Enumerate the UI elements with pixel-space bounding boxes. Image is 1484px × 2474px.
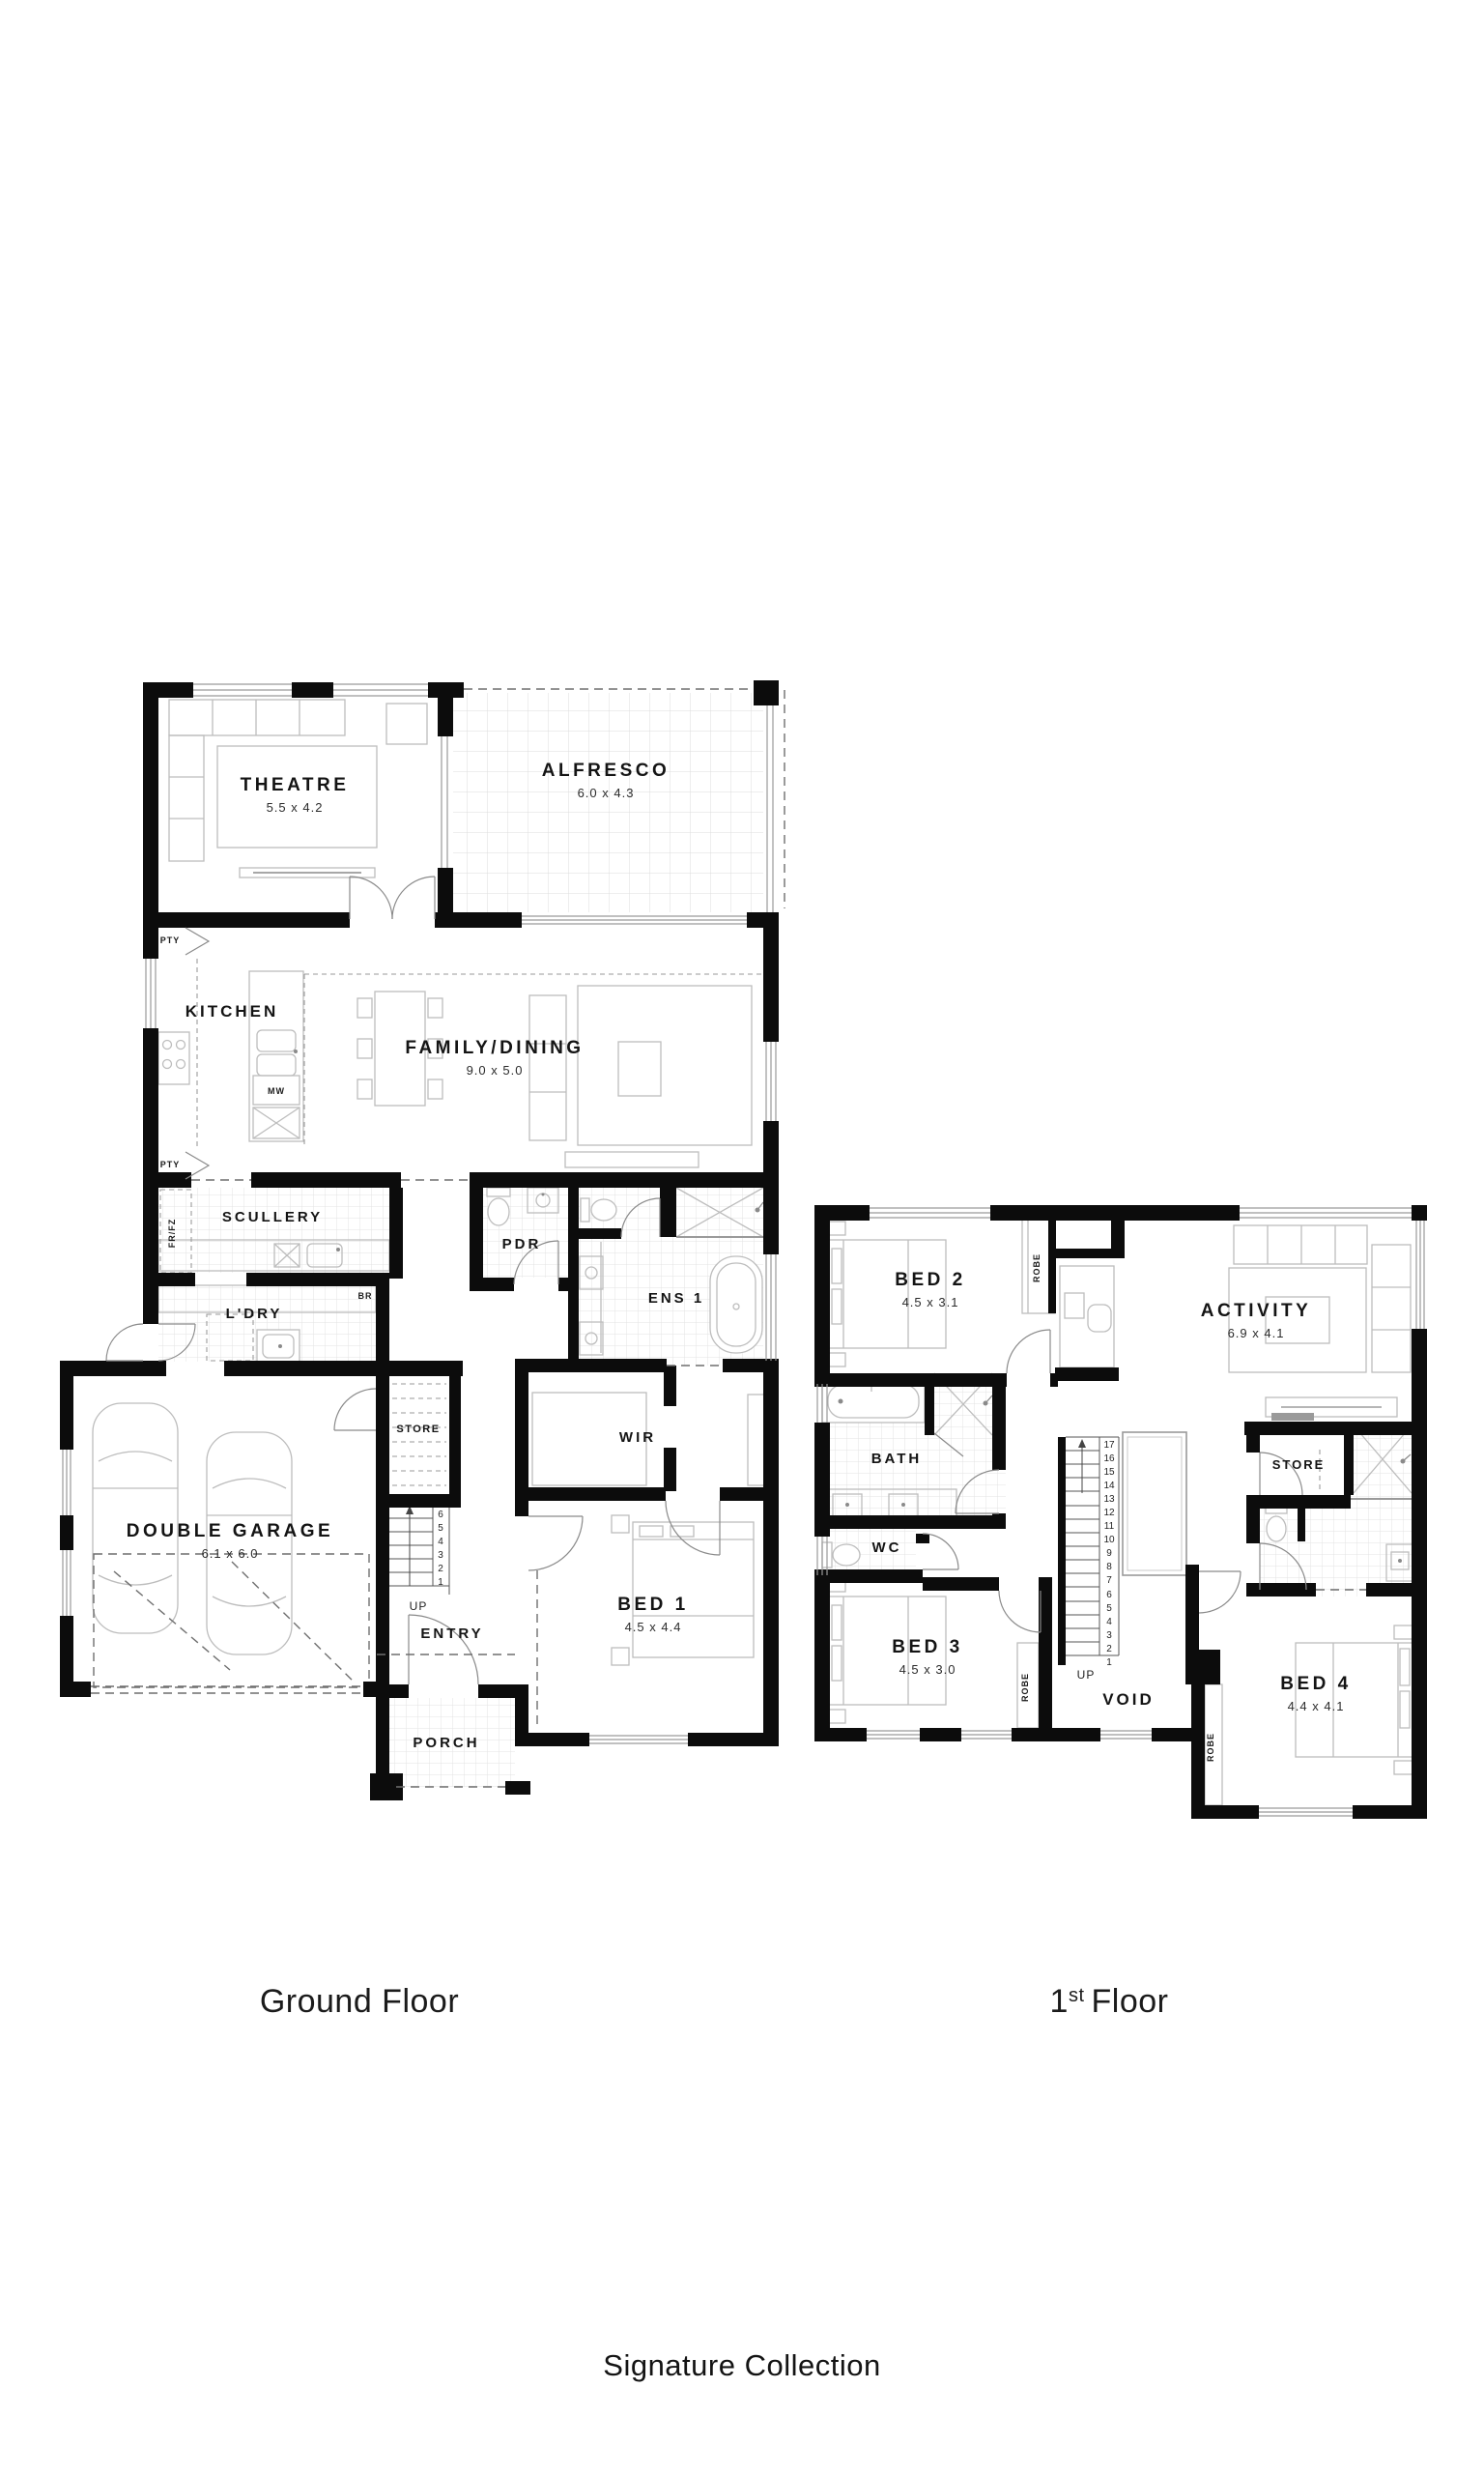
first-stairs: 17 16 15 14 13 12 11 10 9 8 7 6 5 4 3 2 … bbox=[1058, 1432, 1186, 1682]
activity-dims: 6.9 x 4.1 bbox=[1228, 1326, 1285, 1340]
door-arc bbox=[528, 1516, 583, 1570]
window-icon bbox=[766, 1042, 776, 1121]
bed1-dims: 4.5 x 4.4 bbox=[625, 1620, 682, 1634]
door-arc bbox=[999, 1591, 1041, 1632]
floorplan-canvas: 6 5 4 3 2 1 UP bbox=[0, 0, 1484, 2474]
pantry-door-icon bbox=[185, 928, 209, 955]
collection-footer: Signature Collection bbox=[603, 2348, 880, 2382]
window-icon bbox=[1259, 1808, 1353, 1816]
wir-label: WIR bbox=[619, 1429, 656, 1446]
window-icon bbox=[146, 959, 156, 1028]
ldry-label: L'DRY bbox=[226, 1306, 283, 1322]
mw-label: MW bbox=[268, 1086, 285, 1096]
stair-number: 2 bbox=[438, 1564, 443, 1574]
pty-label: PTY bbox=[160, 935, 181, 945]
bed1-label: BED 1 bbox=[617, 1595, 688, 1615]
first-floor-title-suffix: st bbox=[1069, 1985, 1085, 2006]
wc-label: WC bbox=[872, 1539, 902, 1556]
stair-number: 2 bbox=[1106, 1644, 1112, 1654]
entry-label: ENTRY bbox=[420, 1625, 483, 1642]
stair-number: 11 bbox=[1104, 1521, 1115, 1532]
door-arc bbox=[106, 1324, 143, 1361]
window-icon bbox=[589, 1736, 688, 1743]
door-arc bbox=[392, 877, 435, 919]
window-icon bbox=[522, 916, 747, 924]
stair-number: 5 bbox=[438, 1523, 443, 1534]
stair-number: 16 bbox=[1103, 1453, 1115, 1464]
porch-label: PORCH bbox=[413, 1735, 479, 1751]
window-icon bbox=[867, 1731, 1152, 1739]
store-label: STORE bbox=[1272, 1457, 1326, 1472]
window-icon bbox=[442, 736, 447, 868]
ens1-label: ENS 1 bbox=[648, 1290, 704, 1307]
stair-number: 4 bbox=[438, 1537, 443, 1547]
pdr-label: PDR bbox=[502, 1236, 542, 1252]
theatre-label: THEATRE bbox=[241, 775, 350, 795]
first-floor-plan: 17 16 15 14 13 12 11 10 9 8 7 6 5 4 3 2 … bbox=[814, 1205, 1427, 1819]
activity-label: ACTIVITY bbox=[1201, 1301, 1312, 1321]
bed1-icon bbox=[612, 1515, 754, 1665]
stair-number: 9 bbox=[1106, 1548, 1112, 1559]
kitchen-label: KITCHEN bbox=[185, 1002, 279, 1021]
family-sofa-icon bbox=[529, 986, 752, 1145]
pty-label: PTY bbox=[160, 1160, 181, 1169]
up-label: UP bbox=[410, 1599, 428, 1613]
bed2-label: BED 2 bbox=[895, 1270, 965, 1290]
ens1-wc-toilet-icon bbox=[581, 1198, 616, 1222]
stair-number: 5 bbox=[1106, 1603, 1112, 1614]
scullery-label: SCULLERY bbox=[222, 1209, 323, 1225]
garage-driveway-dashed bbox=[94, 1554, 369, 1687]
pdr-toilet-icon bbox=[487, 1188, 510, 1225]
wc-toilet-icon bbox=[822, 1542, 860, 1568]
door-arc bbox=[1007, 1330, 1050, 1373]
window-icon bbox=[766, 1254, 776, 1361]
up-label: UP bbox=[1077, 1668, 1096, 1682]
stair-number: 1 bbox=[1106, 1657, 1112, 1668]
stair-number: 14 bbox=[1103, 1481, 1115, 1491]
frfz-label: FR/FZ bbox=[167, 1219, 177, 1249]
family-dining-dims: 9.0 x 5.0 bbox=[467, 1063, 524, 1078]
bed3-dims: 4.5 x 3.0 bbox=[899, 1662, 956, 1677]
stair-number: 10 bbox=[1103, 1535, 1115, 1545]
alfresco-label: ALFRESCO bbox=[542, 761, 671, 781]
bath-label: BATH bbox=[871, 1451, 923, 1467]
store-mat bbox=[1271, 1413, 1314, 1421]
stair-number: 3 bbox=[438, 1550, 443, 1561]
stair-number: 4 bbox=[1106, 1617, 1112, 1627]
theatre-dims: 5.5 x 4.2 bbox=[267, 800, 324, 815]
stair-up-arrow bbox=[1078, 1439, 1086, 1493]
stair-number: 1 bbox=[438, 1577, 443, 1588]
br-label: BR bbox=[358, 1291, 373, 1301]
family-dining-label: FAMILY/DINING bbox=[405, 1038, 584, 1058]
captions: Ground Floor 1stFloor Signature Collecti… bbox=[260, 1983, 1169, 2382]
robe-label: ROBE bbox=[1020, 1673, 1030, 1702]
stair-number: 15 bbox=[1103, 1467, 1115, 1478]
window-icon bbox=[1416, 1221, 1424, 1329]
stove-icon bbox=[158, 1032, 189, 1084]
double-garage-label: DOUBLE GARAGE bbox=[127, 1521, 333, 1541]
first-floor-title-word: Floor bbox=[1092, 1983, 1169, 2020]
bed4-label: BED 4 bbox=[1280, 1674, 1351, 1694]
alfresco-dims: 6.0 x 4.3 bbox=[578, 786, 635, 800]
stair-number: 7 bbox=[1106, 1575, 1112, 1586]
void-label: VOID bbox=[1102, 1690, 1155, 1709]
ground-floor-plan: 6 5 4 3 2 1 UP bbox=[60, 680, 785, 1800]
ground-floor-title: Ground Floor bbox=[260, 1983, 459, 2020]
stair-number: 6 bbox=[438, 1510, 443, 1520]
first-floor-title-number: 1 bbox=[1050, 1983, 1069, 2020]
activity-sofa-icon bbox=[1234, 1225, 1411, 1372]
car-icon bbox=[93, 1403, 178, 1633]
double-garage-dims: 6.1 x 6.0 bbox=[202, 1546, 259, 1561]
bed3-label: BED 3 bbox=[892, 1637, 962, 1657]
family-tv-bench bbox=[565, 1152, 699, 1167]
stair-number: 8 bbox=[1106, 1562, 1112, 1572]
stair-number: 17 bbox=[1103, 1440, 1115, 1451]
ens2-toilet-icon bbox=[1266, 1505, 1287, 1541]
robe-label: ROBE bbox=[1032, 1253, 1042, 1282]
bed4-dims: 4.4 x 4.1 bbox=[1288, 1699, 1345, 1713]
stair-number: 6 bbox=[1106, 1590, 1112, 1600]
car-icon bbox=[207, 1432, 292, 1654]
theatre-tv-icon bbox=[240, 868, 375, 877]
stair-number: 12 bbox=[1103, 1508, 1115, 1518]
floorplan-page: 6 5 4 3 2 1 UP bbox=[0, 0, 1484, 2474]
door-arc bbox=[1199, 1571, 1241, 1613]
door-arc bbox=[666, 1501, 720, 1555]
first-floor-title: 1stFloor bbox=[1050, 1983, 1169, 2020]
desk-icon bbox=[1060, 1266, 1114, 1367]
family-bulkhead-dashed bbox=[304, 974, 761, 1145]
stair-number: 3 bbox=[1106, 1630, 1112, 1641]
bed2-icon bbox=[828, 1222, 946, 1366]
door-arc bbox=[350, 877, 392, 919]
theatre-rug bbox=[217, 746, 377, 848]
void-railing bbox=[1123, 1432, 1186, 1575]
store-label: STORE bbox=[396, 1424, 440, 1435]
kitchen-island-icon bbox=[249, 971, 303, 1141]
ens1-bathtub-icon bbox=[710, 1256, 762, 1353]
alfresco-floor bbox=[453, 693, 763, 912]
door-arc bbox=[334, 1389, 376, 1430]
robe-label: ROBE bbox=[1206, 1733, 1215, 1762]
stair-number: 13 bbox=[1103, 1494, 1115, 1505]
bed2-dims: 4.5 x 3.1 bbox=[902, 1295, 959, 1309]
